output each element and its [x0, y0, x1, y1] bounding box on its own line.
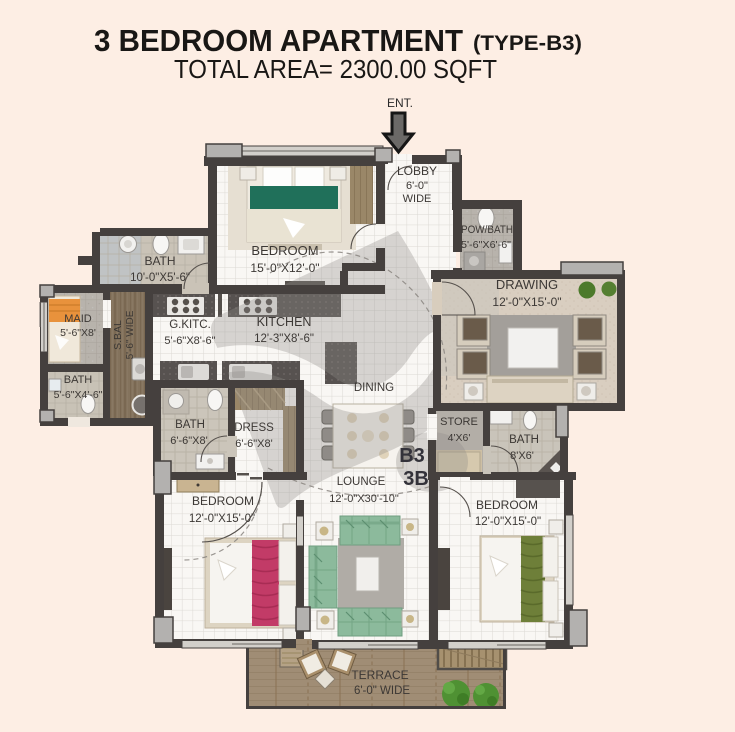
svg-text:WIDE: WIDE	[403, 193, 432, 205]
svg-text:KITCHEN: KITCHEN	[257, 315, 312, 329]
svg-text:G.KITC.: G.KITC.	[169, 319, 211, 331]
svg-text:3 BEDROOM APARTMENT: 3 BEDROOM APARTMENT	[94, 23, 463, 58]
svg-text:STORE: STORE	[440, 416, 478, 428]
svg-text:POW/BATH: POW/BATH	[461, 224, 513, 236]
svg-text:BATH: BATH	[64, 374, 93, 386]
svg-text:6'-6"X8': 6'-6"X8'	[170, 435, 207, 447]
svg-text:DRAWING: DRAWING	[496, 277, 558, 292]
svg-text:8'X6': 8'X6'	[510, 450, 534, 462]
svg-text:MAID: MAID	[64, 313, 92, 325]
svg-text:5'-6"X8'-6": 5'-6"X8'-6"	[164, 335, 215, 347]
svg-text:BEDROOM: BEDROOM	[192, 494, 254, 508]
svg-text:BATH: BATH	[509, 434, 539, 446]
svg-text:DRESS: DRESS	[234, 422, 274, 434]
svg-text:6'-0" WIDE: 6'-0" WIDE	[354, 685, 410, 697]
svg-text:LOUNGE: LOUNGE	[337, 476, 386, 488]
svg-text:LOBBY: LOBBY	[397, 164, 437, 178]
svg-text:12'-0"X15'-0": 12'-0"X15'-0"	[189, 513, 255, 525]
svg-text:5'-6"X8': 5'-6"X8'	[60, 327, 96, 339]
svg-text:ENT.: ENT.	[387, 96, 413, 110]
svg-text:15'-0"X12'-0": 15'-0"X12'-0"	[250, 261, 319, 275]
svg-text:S.BAL: S.BAL	[112, 320, 124, 350]
svg-text:5'-6"X4'-6": 5'-6"X4'-6"	[54, 389, 103, 401]
svg-text:12'-0"X30'-10": 12'-0"X30'-10"	[329, 493, 399, 505]
svg-text:BEDROOM: BEDROOM	[476, 498, 538, 512]
svg-text:3B: 3B	[403, 468, 429, 490]
svg-text:TERRACE: TERRACE	[351, 668, 408, 682]
svg-text:10'-0"X5'-6": 10'-0"X5'-6"	[130, 272, 190, 284]
svg-text:B3: B3	[399, 445, 425, 467]
svg-text:BEDROOM: BEDROOM	[251, 243, 318, 258]
svg-text:5'-6" WIDE: 5'-6" WIDE	[125, 310, 136, 359]
svg-text:12'-3"X8'-6": 12'-3"X8'-6"	[254, 333, 314, 345]
svg-text:6'-0": 6'-0"	[406, 180, 428, 192]
svg-text:BATH: BATH	[175, 419, 205, 431]
svg-text:TOTAL AREA= 2300.00 SQFT: TOTAL AREA= 2300.00 SQFT	[174, 54, 497, 84]
svg-text:12'-0"X15'-0": 12'-0"X15'-0"	[475, 516, 541, 528]
svg-text:BATH: BATH	[144, 254, 175, 268]
svg-text:DINING: DINING	[354, 382, 394, 394]
svg-text:6'-6"X8': 6'-6"X8'	[235, 438, 272, 450]
svg-text:4'X6': 4'X6'	[448, 432, 471, 444]
svg-text:12'-0"X15'-0": 12'-0"X15'-0"	[492, 295, 561, 309]
svg-text:5'-6"X6'-6": 5'-6"X6'-6"	[461, 239, 511, 251]
svg-text:(TYPE-B3): (TYPE-B3)	[473, 32, 582, 55]
